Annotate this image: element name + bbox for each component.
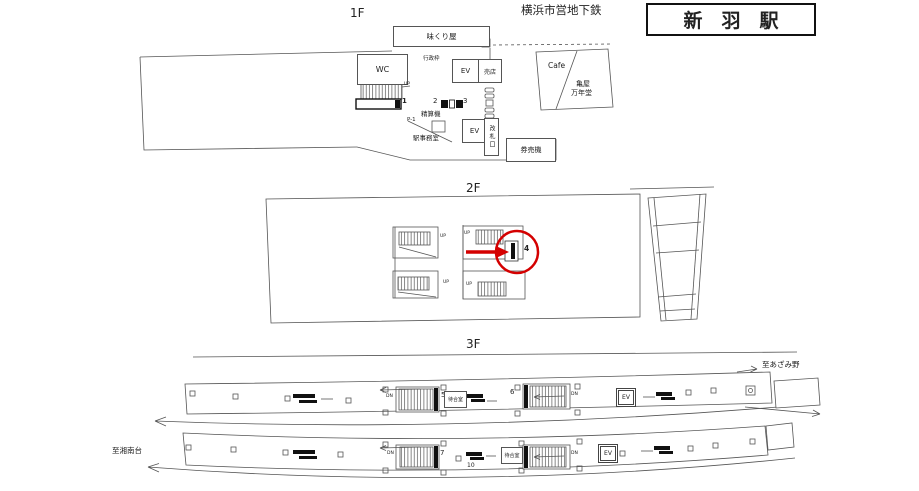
f3-elevator-upper: EV <box>618 390 634 405</box>
floor-2-label: 2F <box>466 182 481 195</box>
f3-ad-number-6: 6 <box>510 389 514 397</box>
f2-up-label-4: UP <box>466 283 472 288</box>
f3-waiting-room-lower: 待合室 <box>501 447 523 464</box>
f2-escalator-shaft <box>648 194 706 321</box>
f1-wc-room: WC <box>357 54 408 85</box>
f2-up-label-3: UP <box>464 232 470 237</box>
f2-stairs-right <box>463 225 525 299</box>
f2-ad-panel-4 <box>505 241 518 261</box>
station-name-box: 新 羽 駅 <box>646 3 816 36</box>
f2-up-label-2: UP <box>443 281 449 286</box>
f3-platform-lower <box>183 423 794 470</box>
f3-platform-upper <box>185 372 820 414</box>
f1-fare-adjust-machine <box>432 121 445 132</box>
f1-shop-ajikuriya: 味くり屋 <box>393 26 490 47</box>
operator-label: 横浜市営地下鉄 <box>521 4 602 17</box>
f2-outline <box>266 187 714 323</box>
f3-dn-label-1: DN <box>386 395 393 400</box>
f1-ad-number-2: 2 <box>433 98 437 106</box>
f3-elevator-lower: EV <box>600 446 616 461</box>
f1-ticket-gates <box>485 88 494 118</box>
f1-fare-adjust-label: 精算機 <box>421 111 441 118</box>
f2-up-label-1: UP <box>440 235 446 240</box>
station-floorplan-page: 1F 横浜市営地下鉄 新 羽 駅 味くり屋 WC 行政枠 EV 売店 Cafe … <box>0 0 919 491</box>
f1-ticket-gate-label: 改札口 <box>484 118 499 156</box>
f1-kameya-label-2: 万年堂 <box>571 90 592 98</box>
f1-cafe-label: Cafe <box>548 62 565 70</box>
f3-dn-label-4: DN <box>571 452 578 457</box>
floor-1-label: 1F <box>350 7 365 20</box>
f3-waiting-room-upper: 待合室 <box>444 391 467 408</box>
f1-p1-label: P-1 <box>407 117 416 123</box>
f3-dn-label-2: DN <box>571 393 578 398</box>
highlight-arrow <box>466 246 509 258</box>
f1-gyosei-label: 行政枠 <box>423 56 440 62</box>
f3-ad-number-7: 7 <box>440 450 444 458</box>
f1-station-office-label: 駅事務室 <box>413 135 439 142</box>
f1-elevator-upper: EV <box>452 59 479 83</box>
f1-ad-position-1-bar <box>356 99 401 109</box>
floor-3-label: 3F <box>466 338 481 351</box>
f1-ad-number-1: 1 <box>402 98 407 106</box>
f1-kiosk: 売店 <box>478 59 502 83</box>
f1-up-label: UP <box>404 83 410 88</box>
f3-to-shonandai-label: 至湘南台 <box>112 447 142 455</box>
f1-cafe-block <box>536 49 613 110</box>
f3-ad-number-10: 10 <box>467 463 475 470</box>
f3-dn-label-3: DN <box>387 452 394 457</box>
f2-stairs-left <box>393 227 438 298</box>
f3-lower-stairs-right <box>523 445 570 469</box>
f1-ticket-machines: 券売機 <box>506 138 556 162</box>
f3-upper-stairs-right <box>523 384 570 409</box>
f1-ad-number-3: 3 <box>463 98 467 106</box>
f1-kameya-label-1: 亀屋 <box>576 81 590 89</box>
f1-ad-bars-2-3 <box>441 100 463 108</box>
f3-to-azamino-label: 至あざみ野 <box>762 361 800 369</box>
f2-ad-number-4: 4 <box>524 245 529 253</box>
